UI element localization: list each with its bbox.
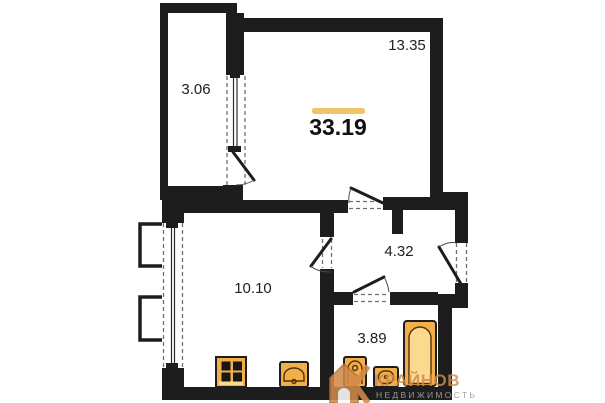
door-leaf (351, 188, 383, 203)
wall-living-right (430, 18, 443, 198)
wall-kitchen-left-bottom (162, 368, 184, 400)
burner (233, 362, 242, 371)
bathroom-area-label: 3.89 (357, 330, 386, 347)
brand-tagline: НЕДВИЖИМОСТЬ (376, 390, 477, 400)
entrance-door (439, 243, 467, 285)
burner (233, 373, 242, 382)
door-leaf (439, 247, 461, 284)
door-arc (384, 277, 389, 292)
wall-partition-step (223, 185, 243, 202)
wall-hall-right-upper (455, 197, 468, 243)
wall-living-top (226, 18, 443, 32)
door-leaf (354, 277, 384, 292)
balcony-window (227, 72, 245, 185)
window-cap (166, 223, 178, 228)
brand-name: КРАЙНОВ (374, 371, 460, 391)
wall-bathroom-top-right (390, 292, 438, 305)
living-room-area-label: 13.35 (388, 37, 426, 54)
window-cap (166, 363, 178, 368)
stove-front (219, 381, 243, 385)
balcony-door (233, 152, 254, 185)
wall-kitchen-right-top (320, 210, 334, 237)
kitchen-sink-icon (280, 362, 308, 387)
stove-icon (216, 357, 246, 387)
burner (222, 373, 231, 382)
living-hall-door (349, 188, 383, 209)
door-leaf (311, 239, 331, 266)
logo-k-arm-upper (356, 366, 368, 384)
wall-balcony-top (160, 3, 237, 13)
hallway-area-label: 4.32 (384, 243, 413, 260)
kitchen-hall-door (311, 239, 332, 272)
wall-balcony-bottom (160, 186, 230, 200)
window-sill (228, 146, 241, 152)
wall-bathroom-top-left (334, 292, 353, 305)
total-area-label: 33.19 (309, 114, 367, 140)
wall-kitchen-left-top (162, 200, 184, 223)
floor-plan-canvas: 33.19 13.35 3.06 10.10 4.32 3.89 КРАЙНОВ… (0, 0, 605, 403)
kitchen-area-label: 10.10 (234, 280, 272, 297)
door-leaf (233, 152, 254, 180)
wall-hall-stub (392, 210, 403, 234)
burner (222, 362, 231, 371)
window-cap (230, 72, 240, 78)
balcony-basket-bottom (140, 297, 162, 340)
door-arc (439, 243, 457, 248)
bathroom-door (354, 277, 389, 302)
kitchen-window (164, 223, 183, 368)
wall-balcony-left (160, 3, 168, 200)
balcony-basket-top (140, 224, 162, 266)
door-arc (349, 188, 351, 203)
floor-plan-drawing: 33.19 13.35 3.06 10.10 4.32 3.89 (0, 0, 605, 403)
balcony-area-label: 3.06 (181, 81, 210, 98)
logo-house-door (338, 388, 350, 403)
brand-logo-icon (326, 360, 370, 403)
